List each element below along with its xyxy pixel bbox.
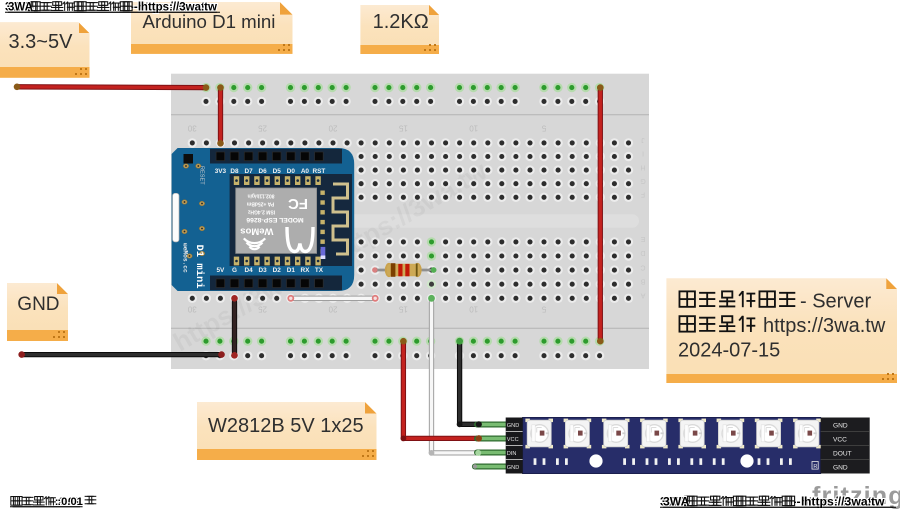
svg-text:3WA: 3WA [8,2,33,14]
svg-text::0.01: :0.01 [57,496,83,508]
svg-text:2024-07-15: 2024-07-15 [678,339,780,361]
svg-text:- Server: - Server [800,290,871,312]
svg-text:- https://3wa.tw: - https://3wa.tw [134,2,217,14]
svg-text:- https://3wa.tw: - https://3wa.tw [797,495,886,509]
svg-text:3WA: 3WA [663,495,690,509]
svg-text:https://3wa.tw: https://3wa.tw [763,315,886,337]
